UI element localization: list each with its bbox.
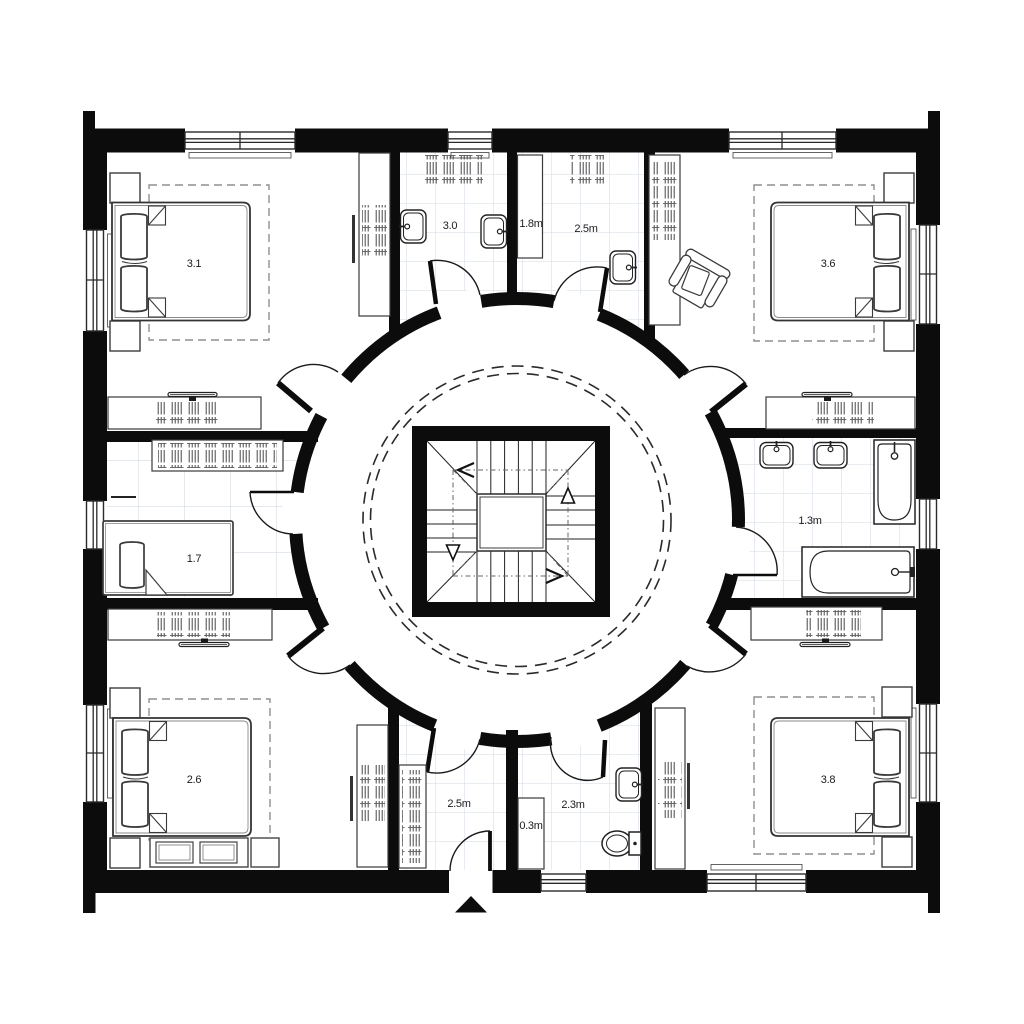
svg-text:3.6: 3.6 [821, 258, 836, 270]
svg-text:1.7: 1.7 [187, 553, 202, 565]
svg-text:2.3m: 2.3m [561, 799, 584, 811]
svg-text:2.5m: 2.5m [574, 223, 597, 235]
svg-text:3.8: 3.8 [821, 774, 836, 786]
svg-text:2.5m: 2.5m [447, 798, 470, 810]
svg-text:1.3m: 1.3m [798, 515, 821, 527]
svg-text:1.8m: 1.8m [519, 218, 542, 230]
svg-text:2.6: 2.6 [187, 774, 202, 786]
svg-text:0.3m: 0.3m [519, 820, 542, 832]
svg-text:3.1: 3.1 [187, 258, 202, 270]
svg-text:3.0: 3.0 [443, 220, 458, 232]
